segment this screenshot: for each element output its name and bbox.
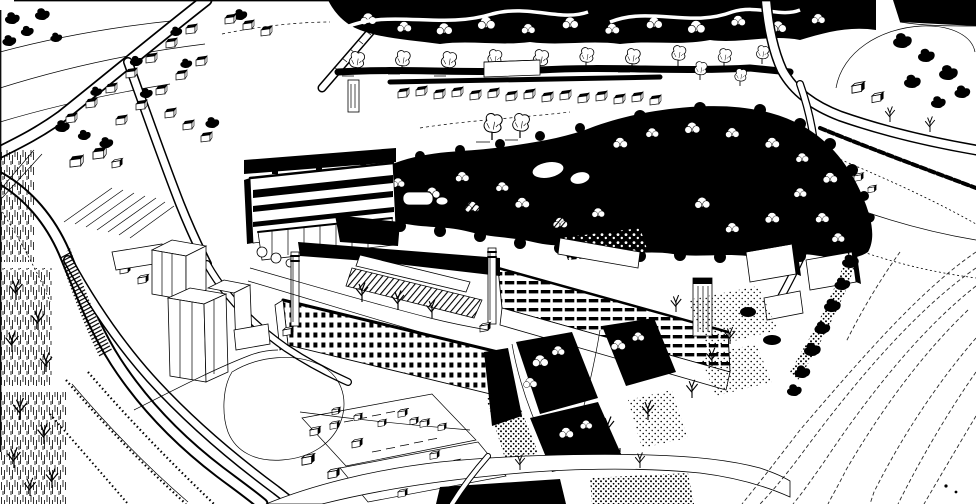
illustration-page <box>0 0 976 504</box>
aerial-drawing <box>0 0 976 504</box>
pond <box>403 192 433 205</box>
forest-ridge <box>328 0 876 44</box>
bridge-pier <box>348 80 359 112</box>
long-shed <box>484 60 540 77</box>
